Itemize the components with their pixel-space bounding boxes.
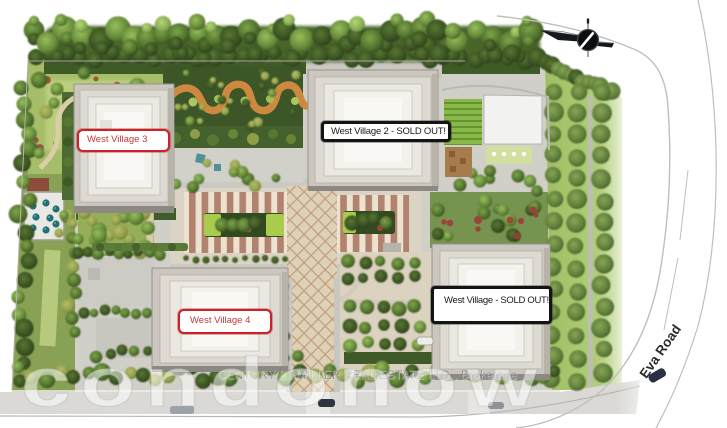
svg-text:condonow: condonow	[21, 344, 547, 422]
